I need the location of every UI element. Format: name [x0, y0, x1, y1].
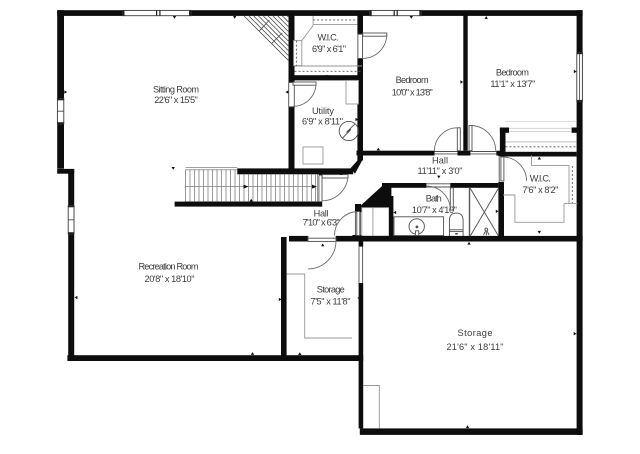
svg-text:Hall: Hall — [432, 156, 448, 166]
svg-text:Storage: Storage — [317, 284, 345, 294]
svg-text:11'1" x 13'7": 11'1" x 13'7" — [490, 79, 535, 89]
svg-text:22'6" x 15'5": 22'6" x 15'5" — [154, 95, 198, 105]
svg-text:W.I.C.: W.I.C. — [318, 33, 339, 43]
svg-text:11'11" x 3'0": 11'11" x 3'0" — [418, 166, 463, 176]
svg-text:Utility: Utility — [312, 106, 334, 116]
svg-text:Recreation Room: Recreation Room — [139, 261, 199, 271]
svg-text:6'9" x 8'11": 6'9" x 8'11" — [302, 117, 343, 127]
svg-text:20'8" x 18'10": 20'8" x 18'10" — [145, 274, 195, 284]
svg-text:7'6" x 8'2": 7'6" x 8'2" — [522, 185, 558, 195]
svg-text:Bedroom: Bedroom — [496, 67, 529, 77]
svg-text:Bath: Bath — [426, 193, 442, 203]
svg-text:Bedroom: Bedroom — [396, 75, 429, 85]
svg-text:7'5" x 11'8": 7'5" x 11'8" — [311, 297, 351, 307]
svg-text:W.I.C.: W.I.C. — [530, 174, 551, 184]
svg-text:Sitting Room: Sitting Room — [153, 85, 199, 95]
svg-text:Storage: Storage — [458, 328, 493, 338]
svg-text:10'7" x 4'10": 10'7" x 4'10" — [412, 205, 457, 215]
svg-text:7'10" x 6'3": 7'10" x 6'3" — [303, 218, 340, 228]
svg-text:10'0" x 13'8": 10'0" x 13'8" — [392, 88, 433, 98]
svg-text:6'9" x 6'1": 6'9" x 6'1" — [312, 44, 346, 54]
svg-text:21'6" x 18'11": 21'6" x 18'11" — [447, 342, 504, 352]
